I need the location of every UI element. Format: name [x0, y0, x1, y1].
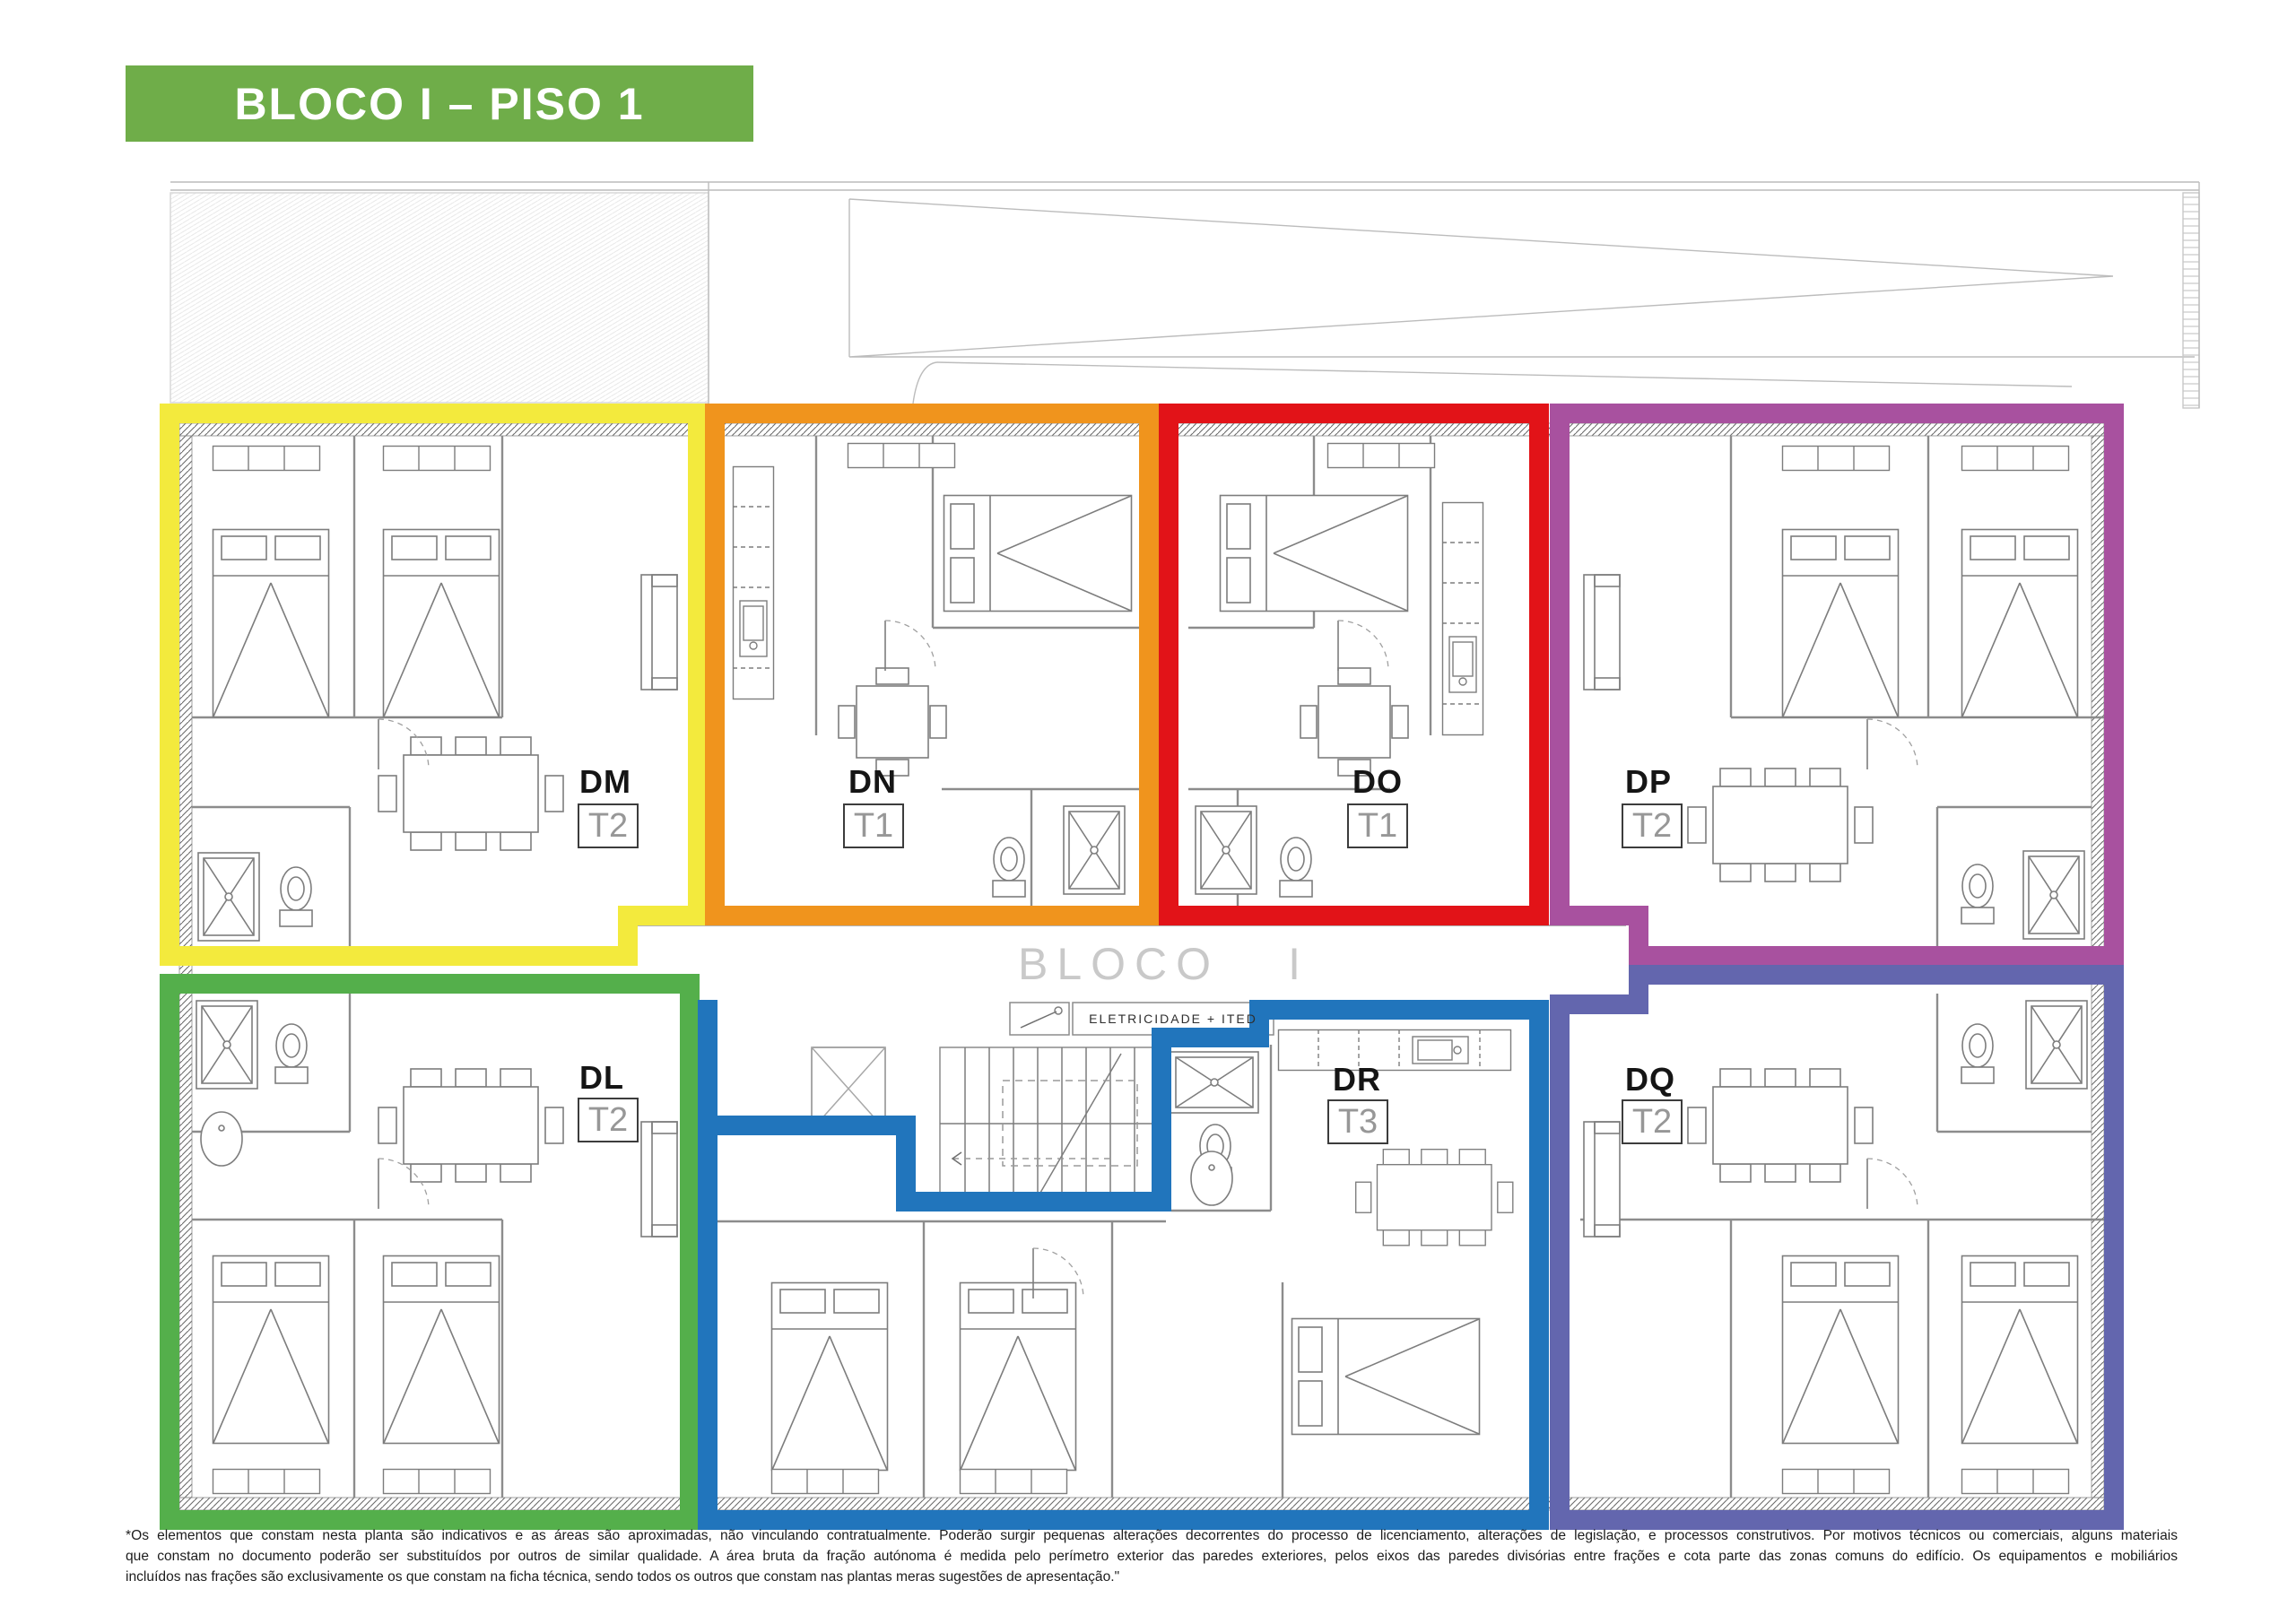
- unit-type-dn: T1: [843, 803, 904, 848]
- disclaimer-line-3: incluídos nas frações são exclusivamente…: [126, 1567, 2178, 1587]
- unit-label-dq: DQ T2: [1625, 1064, 1675, 1096]
- unit-label-dl: DL T2: [579, 1062, 624, 1094]
- disclaimer-line-2: que constam no documento poderão ser sub…: [126, 1546, 2178, 1567]
- unit-code-dq: DQ: [1625, 1064, 1675, 1096]
- unit-type-do: T1: [1347, 803, 1408, 848]
- unit-type-dp: T2: [1622, 803, 1683, 848]
- corridor-block-word: BLOCO: [1018, 938, 1220, 990]
- unit-code-dm: DM: [579, 766, 631, 798]
- unit-code-dl: DL: [579, 1062, 624, 1094]
- unit-label-dr: DR T3: [1333, 1064, 1381, 1096]
- unit-code-dp: DP: [1625, 766, 1672, 798]
- unit-code-dr: DR: [1333, 1064, 1381, 1096]
- corridor-block-label: BLOCO I: [1018, 938, 1309, 990]
- disclaimer-line-1: *Os elementos que constam nesta planta s…: [126, 1525, 2178, 1546]
- unit-code-do: DO: [1352, 766, 1403, 798]
- unit-code-dn: DN: [848, 766, 897, 798]
- unit-label-dn: DN T1: [848, 766, 897, 798]
- floor-plan-page: BLOCO I – PISO 1: [0, 0, 2296, 1624]
- unit-type-dl: T2: [578, 1098, 639, 1142]
- unit-label-do: DO T1: [1352, 766, 1403, 798]
- unit-type-dm: T2: [578, 803, 639, 848]
- site-context-lines: [170, 182, 2199, 408]
- unit-label-dm: DM T2: [579, 766, 631, 798]
- floor-plan-drawing: [0, 0, 2296, 1624]
- electrical-closet-label: ELETRICIDADE + ITED: [1073, 1003, 1274, 1035]
- corridor-block-numeral: I: [1288, 938, 1309, 990]
- unit-label-dp: DP T2: [1625, 766, 1672, 798]
- unit-type-dr: T3: [1327, 1099, 1388, 1144]
- unit-type-dq: T2: [1622, 1099, 1683, 1144]
- disclaimer-text: *Os elementos que constam nesta planta s…: [126, 1525, 2178, 1587]
